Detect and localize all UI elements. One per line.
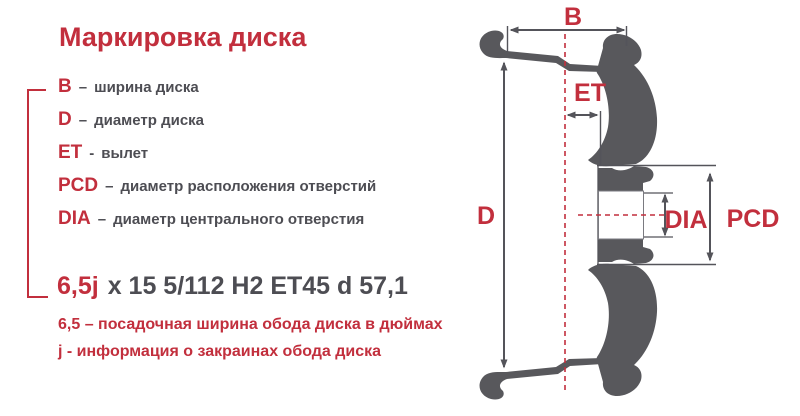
legend-desc-dia: диаметр центрального отверстия (113, 211, 364, 228)
legend: B – ширина диска D – диаметр диска ET - … (58, 76, 376, 241)
diagram-label-b: B (564, 3, 582, 31)
legend-term-d: D (58, 109, 72, 131)
note-flange-info: j - информация о закраинах обода диска (58, 343, 381, 361)
legend-item-b: B – ширина диска (58, 76, 376, 97)
legend-separator: – (105, 178, 113, 195)
diagram-label-pcd: PCD (727, 205, 780, 233)
legend-separator: – (79, 79, 87, 96)
legend-desc-pcd: диаметр расположения отверстий (120, 178, 376, 195)
legend-separator: – (79, 112, 87, 129)
legend-desc-et: вылет (101, 145, 148, 162)
legend-separator: - (89, 145, 94, 162)
legend-term-dia: DIA (58, 208, 91, 230)
diagram-label-dia: DIA (664, 206, 707, 234)
wheel-cross-section-diagram: B ET D DIA PCD (450, 0, 800, 416)
legend-item-d: D – диаметр диска (58, 109, 376, 130)
legend-term-et: ET (58, 142, 82, 164)
legend-term-pcd: PCD (58, 175, 98, 197)
marking-highlight: 6,5j (57, 272, 99, 300)
bracket-tick-top (27, 89, 46, 91)
legend-desc-d: диаметр диска (94, 112, 204, 129)
marking-rest: x 15 5/112 H2 ET45 d 57,1 (108, 272, 408, 300)
page-title: Маркировка диска (59, 22, 306, 53)
diagram-label-et: ET (574, 79, 606, 107)
note-rim-width: 6,5 – посадочная ширина обода диска в дю… (58, 316, 443, 334)
bracket-line (27, 90, 29, 298)
legend-term-b: B (58, 76, 72, 98)
legend-item-et: ET - вылет (58, 142, 376, 163)
diagram-label-d: D (477, 202, 495, 230)
legend-desc-b: ширина диска (94, 79, 199, 96)
bracket-tick-bottom (27, 296, 48, 298)
legend-separator: – (98, 211, 106, 228)
legend-item-dia: DIA – диаметр центрального отверстия (58, 208, 376, 229)
legend-item-pcd: PCD – диаметр расположения отверстий (58, 175, 376, 196)
marking-example: 6,5jx 15 5/112 H2 ET45 d 57,1 (57, 272, 408, 301)
